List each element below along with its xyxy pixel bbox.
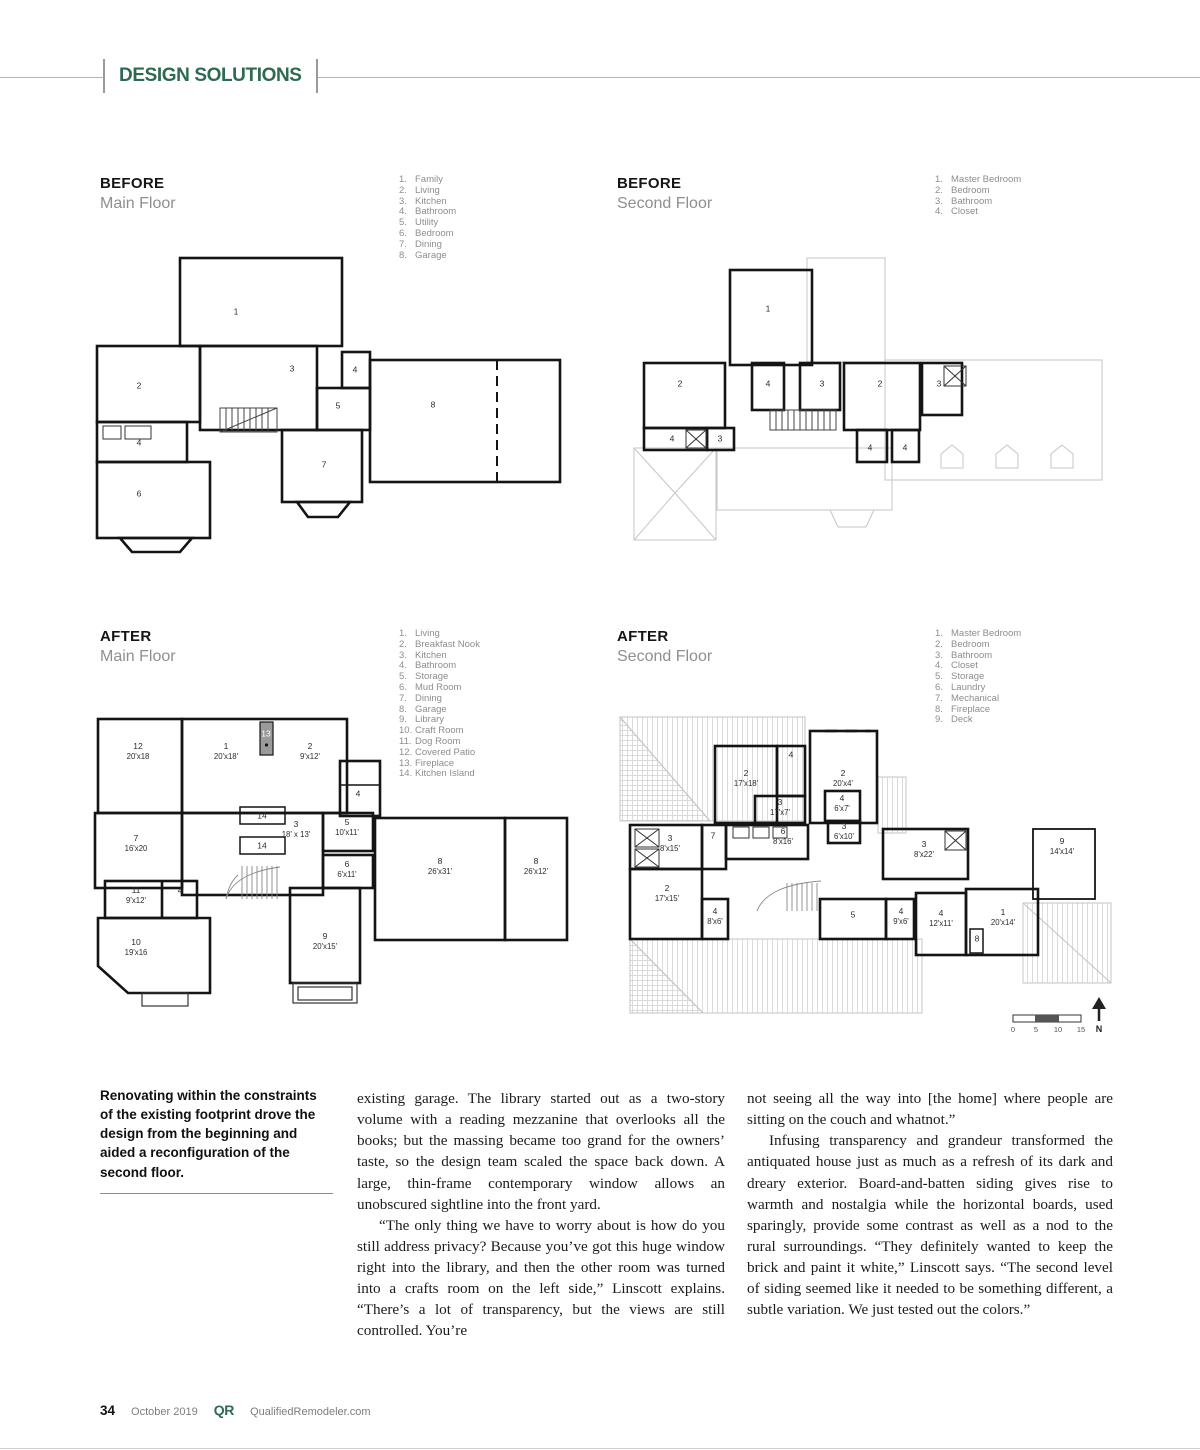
room-label: 4 [903,443,908,453]
room-label: 826'x12' [524,857,548,876]
room-label: 4 [766,379,771,389]
dormer-icon [996,445,1018,468]
stage-label: AFTER [617,628,712,645]
room-label: 8 [431,400,436,410]
room-label: 48'x6' [707,907,723,926]
floor-plan-before-second-drawing [622,250,1137,565]
legend-item: 3.Bathroom [935,197,1021,208]
floor-plan-before-main: 123454678 [92,240,572,560]
room-label: 36'x10' [834,822,854,841]
room-label: 6 [137,489,142,499]
room-label: 1019'x16 [125,938,148,957]
stairs-icon [757,881,821,911]
legend-item: 8.Garage [399,251,456,262]
floor-plan-after-second: 0 5 10 15 N 217'x18'4220'x4'317'x7'46'x7… [615,703,1135,1048]
dormer-icon [941,445,963,468]
legend-after-second: 1.Master Bedroom2.Bedroom3.Bathroom4.Clo… [935,629,1021,726]
room-label: 4 [789,750,794,760]
plan-heading-after-second: AFTER Second Floor [617,628,712,666]
scale-tick: 10 [1054,1025,1062,1034]
room-label: 4 [137,438,142,448]
room-label: 68'x16' [773,827,793,846]
room-label: 5 [336,401,341,411]
room-label: 1220'x18 [127,742,150,761]
fixtures [103,426,151,439]
room-label: 3 [820,379,825,389]
issue-date: October 2019 [131,1406,198,1418]
floor-label: Main Floor [100,195,176,213]
room-label: 2 [678,379,683,389]
roof-outline [634,258,1102,540]
room-label: 66'x11' [337,860,356,879]
room-label: 14 [257,841,266,851]
website-url: QualifiedRemodeler.com [250,1406,370,1418]
article-column-1: existing garage. The library started out… [357,1088,725,1342]
floor-plan-after-main: 1220'x18120'x18'1329'x12'414318' x 13'51… [90,703,580,1025]
legend-item: 14.Kitchen Island [399,769,480,780]
room-label: 46'x7' [834,794,850,813]
room-label: 38'x15' [660,834,680,853]
room-label: 7 [711,831,716,841]
room-label: 2 [878,379,883,389]
stairs-icon [220,408,277,432]
north-label: N [1096,1024,1103,1034]
floor-plan-before-main-drawing [92,240,572,560]
stage-label: BEFORE [617,175,712,192]
closet-x-icon [686,366,966,448]
walls [97,258,560,552]
room-label: 13 [261,729,270,739]
plan-heading-before-main: BEFORE Main Floor [100,175,176,213]
section-title-block: DESIGN SOLUTIONS [103,59,318,93]
scale-tick: 0 [1011,1025,1015,1034]
floor-label: Second Floor [617,195,712,213]
room-label: 318' x 13' [282,820,311,839]
room-label: 412'x11' [929,909,953,928]
room-label: 217'x18' [734,769,758,788]
walls [644,270,962,462]
roof-hatch [620,717,1111,1013]
room-label: 914'x14' [1050,837,1074,856]
legend-item: 7.Dining [399,240,456,251]
floor-plan-after-second-drawing [615,703,1135,1048]
plan-heading-after-main: AFTER Main Floor [100,628,176,666]
scale-bar-icon [1013,1015,1081,1022]
room-label: 5 [851,910,856,920]
stage-label: AFTER [100,628,176,645]
paragraph: existing garage. The library started out… [357,1088,725,1215]
room-label: 14 [257,811,266,821]
room-label: 826'x31' [428,857,452,876]
legend-item: 7.Mechanical [935,694,1021,705]
legend-item: 9.Deck [935,715,1021,726]
floor-plan-before-second: 1243234344 [622,250,1137,565]
paragraph: Infusing transparency and grandeur trans… [747,1130,1113,1320]
room-label: 38'x22' [914,840,934,859]
magazine-page: DESIGN SOLUTIONS BEFORE Main Floor 1.Fam… [0,0,1200,1450]
paragraph: not seeing all the way into [the home] w… [747,1088,1113,1130]
footer-rule [0,1448,1200,1449]
legend-before-main: 1.Family2.Living3.Kitchen4.Bathroom5.Uti… [399,175,456,261]
room-label: 120'x14' [991,908,1015,927]
room-label: 3 [290,364,295,374]
room-label: 716'x20 [125,834,148,853]
plan-heading-before-second: BEFORE Second Floor [617,175,712,213]
stage-label: BEFORE [100,175,176,192]
room-label: 4 [178,886,183,896]
porch-steps [142,983,357,1006]
legend-item: 2.Bedroom [935,186,1021,197]
pull-caption: Renovating within the constraints of the… [100,1086,333,1194]
legend-item: 2.Breakfast Nook [399,640,480,651]
room-label: 8 [975,934,980,944]
dormer-icon [1051,445,1073,468]
room-label: 4 [670,434,675,444]
floor-label: Second Floor [617,648,712,666]
legend-item: 2.Living [399,186,456,197]
room-label: 4 [356,789,361,799]
room-label: 4 [353,365,358,375]
room-label: 120'x18' [214,742,238,761]
room-label: 3 [937,379,942,389]
room-label: 217'x15' [655,884,679,903]
page-number: 34 [100,1403,115,1418]
page-footer: 34 October 2019 QR QualifiedRemodeler.co… [100,1402,371,1418]
north-arrow-icon [1092,997,1106,1021]
scale-tick: 15 [1077,1025,1085,1034]
room-label: 510'x11' [335,818,359,837]
room-label: 317'x7' [770,798,790,817]
floor-label: Main Floor [100,648,176,666]
room-label: 220'x4' [833,769,853,788]
walls [95,719,567,993]
room-label: 920'x15' [313,932,337,951]
room-label: 4 [868,443,873,453]
legend-item: 2.Bedroom [935,640,1021,651]
legend-item: 3.Bathroom [935,651,1021,662]
article-column-2: not seeing all the way into [the home] w… [747,1088,1113,1320]
legend-item: 4.Closet [935,207,1021,218]
legend-after-main: 1.Living2.Breakfast Nook3.Kitchen4.Bathr… [399,629,480,780]
floor-plan-after-main-drawing [90,703,580,1025]
qr-logo: QR [214,1402,234,1418]
legend-item: 7.Dining [399,694,480,705]
legend-item: 8.Fireplace [935,705,1021,716]
room-label: 1 [766,304,771,314]
section-title: DESIGN SOLUTIONS [119,65,302,87]
scale-tick: 5 [1034,1025,1038,1034]
room-label: 7 [322,460,327,470]
stairs-icon [770,410,836,430]
paragraph: “The only thing we have to worry about i… [357,1215,725,1342]
room-label: 3 [718,434,723,444]
legend-item: 12.Covered Patio [399,748,480,759]
room-label: 29'x12' [300,742,320,761]
legend-before-second: 1.Master Bedroom2.Bedroom3.Bathroom4.Clo… [935,175,1021,218]
room-label: 119'x12' [126,886,146,905]
room-label: 49'x6' [893,907,909,926]
room-label: 2 [137,381,142,391]
room-label: 1 [234,307,239,317]
